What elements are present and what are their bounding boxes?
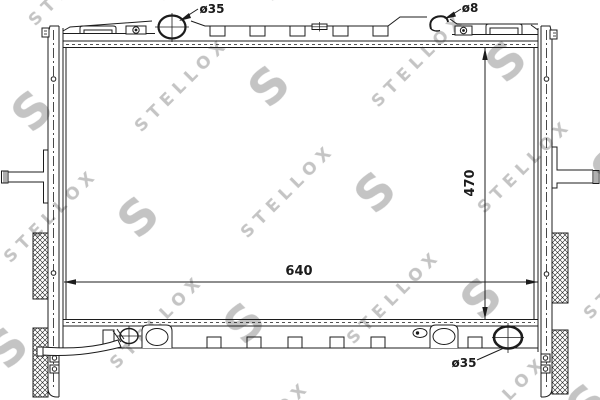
right-upper-mount-pad [552, 233, 568, 303]
top-left-sensor-boss [126, 26, 146, 34]
outlet-diameter-label: ø35 [452, 356, 477, 370]
bottom-mount-boss-right [430, 325, 458, 348]
left-upper-mount-pad [33, 233, 48, 299]
right-bolt-2 [541, 365, 550, 373]
right-lower-mount-pad [552, 330, 568, 394]
left-bracket-hole-bottom [51, 271, 56, 276]
left-bolt-2 [50, 365, 59, 373]
right-bracket-hole-bottom [544, 272, 549, 277]
bottom-mount-boss-left [142, 325, 172, 348]
right-bracket-tab [550, 30, 557, 39]
core-height-label: 470 [463, 169, 478, 196]
bottom-small-oval [413, 329, 427, 338]
core-width-label: 640 [285, 264, 312, 279]
left-bracket-hole-top [51, 77, 56, 82]
right-bracket-hole-top [544, 77, 549, 82]
filler-diameter-label: ø35 [200, 2, 225, 16]
top-right-sensor-boss [455, 26, 472, 35]
left-lower-mount-pad [33, 328, 48, 397]
right-bolt-1 [541, 354, 550, 362]
overflow-diameter-label: ø8 [462, 1, 479, 15]
drawing-canvas: STELLOX S [0, 0, 600, 400]
left-bracket-tab [42, 28, 49, 37]
radiator-technical-drawing: STELLOX S [0, 0, 600, 400]
